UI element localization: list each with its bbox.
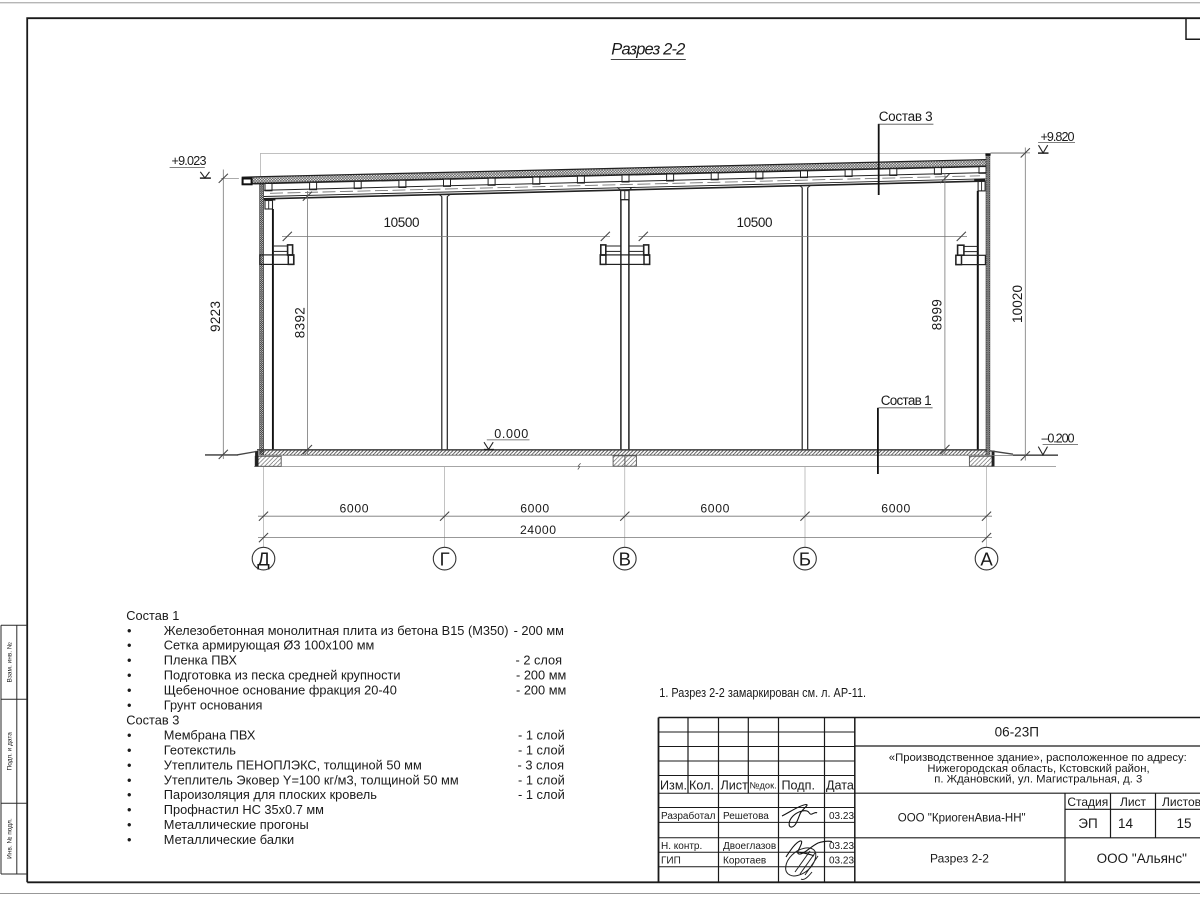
svg-text:Н. контр.: Н. контр. xyxy=(661,841,702,852)
svg-text:№док.: №док. xyxy=(750,780,777,790)
svg-text:•: • xyxy=(127,742,131,757)
svg-text:В: В xyxy=(619,548,631,569)
svg-text:–0.200: –0.200 xyxy=(1042,431,1075,445)
svg-text:•: • xyxy=(127,832,131,847)
svg-text:03.23: 03.23 xyxy=(829,856,854,867)
svg-text:Разрез 2-2: Разрез 2-2 xyxy=(611,41,685,59)
svg-text:Разрез 2-2: Разрез 2-2 xyxy=(930,851,989,865)
svg-text:6000: 6000 xyxy=(520,502,549,516)
svg-text:14: 14 xyxy=(1118,816,1134,831)
svg-text:•: • xyxy=(127,787,131,802)
svg-text:Стадия: Стадия xyxy=(1067,795,1108,809)
svg-text:10500: 10500 xyxy=(737,215,773,230)
svg-text:Лист: Лист xyxy=(1120,795,1147,809)
svg-text:6000: 6000 xyxy=(700,502,729,516)
svg-text:•: • xyxy=(127,698,131,713)
svg-text:1. Разрез 2-2 замаркирован см.: 1. Разрез 2-2 замаркирован см. л. АР-11. xyxy=(659,685,866,700)
svg-text:Подп. и дата: Подп. и дата xyxy=(7,732,14,771)
svg-text:Г: Г xyxy=(440,548,450,569)
svg-text:Состав 1: Состав 1 xyxy=(126,608,179,623)
svg-text:- 1 слой: - 1 слой xyxy=(518,727,565,742)
svg-text:Металлические прогоны: Металлические прогоны xyxy=(164,817,309,832)
svg-text:- 1 слой: - 1 слой xyxy=(518,742,565,757)
svg-text:•: • xyxy=(127,772,131,787)
svg-text:•: • xyxy=(127,653,131,668)
svg-text:Щебеночное основание фракция 2: Щебеночное основание фракция 20-40 xyxy=(164,683,397,698)
svg-text:п. Ждановский, ул. Магистральн: п. Ждановский, ул. Магистральная, д. 3 xyxy=(934,774,1142,786)
svg-text:Утеплитель ПЕНОПЛЭКС, толщиной: Утеплитель ПЕНОПЛЭКС, толщиной 50 мм xyxy=(164,757,422,772)
svg-text:- 1 слой: - 1 слой xyxy=(518,787,565,802)
svg-text:Листов: Листов xyxy=(1162,795,1200,809)
svg-text:Б: Б xyxy=(799,548,811,569)
svg-text:•: • xyxy=(127,668,131,683)
svg-text:- 1 слой: - 1 слой xyxy=(518,772,565,787)
svg-text:А: А xyxy=(980,548,993,569)
svg-text:- 200 мм: - 200 мм xyxy=(516,668,566,683)
svg-text:Подп.: Подп. xyxy=(782,778,815,792)
svg-text:ЭП: ЭП xyxy=(1078,816,1097,831)
svg-text:03.23: 03.23 xyxy=(829,811,854,822)
svg-text:Сетка армирующая Ø3 100х100 мм: Сетка армирующая Ø3 100х100 мм xyxy=(164,638,375,653)
svg-text:Лист: Лист xyxy=(721,778,749,792)
svg-text:9223: 9223 xyxy=(208,301,223,332)
svg-text:24000: 24000 xyxy=(520,523,556,537)
svg-text:03.23: 03.23 xyxy=(829,841,854,852)
svg-text:Мембрана ПВХ: Мембрана ПВХ xyxy=(164,727,256,742)
svg-text:•: • xyxy=(127,638,131,653)
svg-text:+9.820: +9.820 xyxy=(1041,130,1075,144)
svg-text:Металлические балки: Металлические балки xyxy=(164,832,294,847)
svg-text:06-23П: 06-23П xyxy=(995,724,1039,739)
svg-text:Геотекстиль: Геотекстиль xyxy=(164,742,236,757)
svg-text:Д: Д xyxy=(257,548,270,569)
svg-text:Решетова: Решетова xyxy=(723,811,769,822)
svg-text:10020: 10020 xyxy=(1010,285,1025,323)
svg-text:- 2 слоя: - 2 слоя xyxy=(516,653,563,668)
svg-text:Коротаев: Коротаев xyxy=(723,855,766,866)
svg-text:Двоеглазов: Двоеглазов xyxy=(723,841,776,852)
svg-text:ГИП: ГИП xyxy=(661,855,681,866)
svg-text:Железобетонная монолитная плит: Железобетонная монолитная плита из бетон… xyxy=(164,623,509,638)
svg-text:•: • xyxy=(127,817,131,832)
svg-text:8999: 8999 xyxy=(929,299,944,330)
svg-text:Дата: Дата xyxy=(826,778,854,792)
svg-text:Грунт основания: Грунт основания xyxy=(164,698,263,713)
svg-text:- 200 мм: - 200 мм xyxy=(514,623,564,638)
svg-text:6000: 6000 xyxy=(340,502,369,516)
svg-text:•: • xyxy=(127,802,131,817)
svg-text:- 200 мм: - 200 мм xyxy=(516,683,566,698)
svg-text:Взам. инв. №: Взам. инв. № xyxy=(7,642,14,682)
svg-text:6000: 6000 xyxy=(881,502,910,516)
svg-text:8392: 8392 xyxy=(292,307,307,338)
svg-text:Кол.: Кол. xyxy=(689,778,714,792)
svg-text:ООО "Альянс": ООО "Альянс" xyxy=(1097,851,1187,866)
svg-text:ООО "КриогенАвиа-НН": ООО "КриогенАвиа-НН" xyxy=(898,813,1026,825)
svg-text:•: • xyxy=(127,727,131,742)
svg-text:Состав 3: Состав 3 xyxy=(126,713,179,728)
svg-text:Пленка ПВХ: Пленка ПВХ xyxy=(164,653,238,668)
svg-text:Инв. № подл.: Инв. № подл. xyxy=(7,818,14,859)
svg-text:Подготовка из песка средней кр: Подготовка из песка средней крупности xyxy=(164,668,401,683)
svg-text:•: • xyxy=(127,757,131,772)
svg-text:0.000: 0.000 xyxy=(494,427,528,441)
svg-text:15: 15 xyxy=(1176,816,1191,831)
svg-text:Разработал: Разработал xyxy=(661,810,716,822)
svg-text:Утеплитель Эковер Y=100 кг/м3,: Утеплитель Эковер Y=100 кг/м3, толщиной … xyxy=(164,772,459,787)
svg-text:•: • xyxy=(127,683,131,698)
svg-text:+9.023: +9.023 xyxy=(172,154,207,168)
svg-text:Пароизоляция для плоских крове: Пароизоляция для плоских кровель xyxy=(164,787,377,802)
svg-text:Профнастил НС 35х0.7 мм: Профнастил НС 35х0.7 мм xyxy=(164,802,324,817)
svg-text:Состав 1: Состав 1 xyxy=(881,393,932,408)
svg-text:10500: 10500 xyxy=(384,215,420,230)
svg-text:Состав 3: Состав 3 xyxy=(879,109,933,124)
svg-text:- 3 слоя: - 3 слоя xyxy=(518,757,565,772)
svg-text:Изм.: Изм. xyxy=(660,778,687,792)
svg-text:•: • xyxy=(127,623,131,638)
